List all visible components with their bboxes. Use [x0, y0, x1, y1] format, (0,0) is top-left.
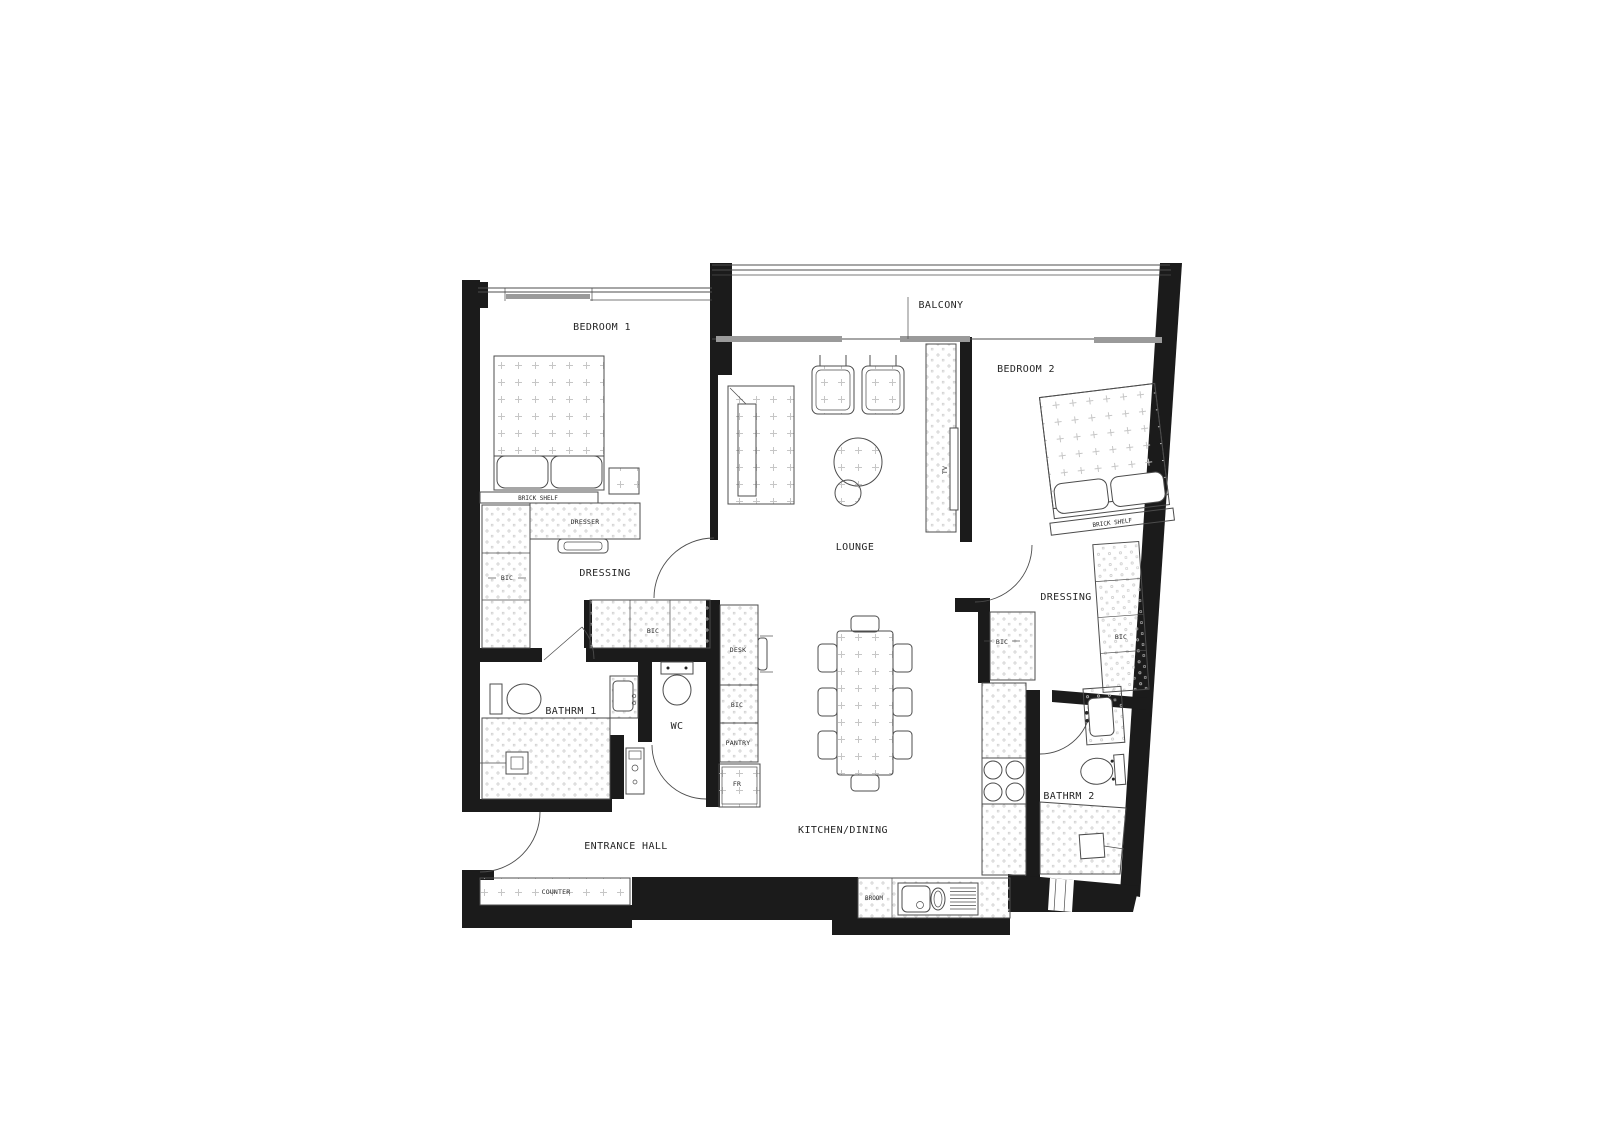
coffee-table	[834, 438, 882, 486]
balcony-slider-sill	[1094, 337, 1162, 343]
wall-bathroom1-south	[462, 799, 612, 812]
floor-plan-page: BRICK SHELF BEDROOM 1 BALCONY BEDROOM 2 …	[0, 0, 1600, 1142]
room-label-kitchen-dining: KITCHEN/DINING	[798, 825, 888, 836]
armchair-seat	[862, 366, 904, 414]
stove	[982, 758, 1026, 804]
basin-2	[1088, 697, 1115, 737]
dining-chair	[818, 688, 837, 716]
bathroom2-door-arc	[1040, 703, 1091, 754]
room-label-wc: WC	[671, 721, 684, 732]
wall-south-middle	[632, 877, 832, 920]
entrance-door-arc	[480, 812, 540, 872]
wall-wc-west-upper	[638, 650, 652, 742]
dining-set	[818, 616, 912, 791]
balcony-slider-sill	[716, 336, 842, 342]
label-bic-dressing2: BIC	[1115, 633, 1127, 641]
toilet-2-cistern	[661, 662, 693, 674]
shower-drain-2	[1079, 833, 1105, 859]
dining-chair	[893, 731, 912, 759]
label-tv: TV	[941, 466, 949, 474]
cistern-dot	[685, 667, 688, 670]
armchair-seat	[812, 366, 854, 414]
basin-1	[613, 681, 633, 711]
label-bic-left: BIC	[501, 574, 513, 582]
room-label-bathrm-2: BATHRM 2	[1043, 791, 1094, 802]
dining-chair	[818, 644, 837, 672]
wall-bathroom2-west	[1026, 690, 1040, 878]
cistern-dot	[667, 667, 670, 670]
wall-wc-west-lower	[610, 735, 624, 799]
label-brick-shelf-1: BRICK SHELF	[518, 495, 558, 502]
dining-chair	[818, 731, 837, 759]
room-label-lounge: LOUNGE	[836, 542, 875, 553]
dressing2-cupboards	[1093, 542, 1149, 693]
label-bic-kitchen: BIC	[996, 638, 1008, 646]
wc-door-arc	[652, 745, 706, 799]
bic-cupboard-kitchen	[990, 612, 1035, 680]
room-label-balcony: BALCONY	[919, 300, 964, 311]
label-broom: BROOM	[865, 895, 883, 902]
wall-bathroom2-south	[1008, 874, 1139, 912]
ottoman	[835, 480, 861, 506]
dressing1-door-arc	[654, 538, 714, 598]
toilet-2-bowl	[663, 675, 691, 705]
label-bic-column: BIC	[731, 701, 743, 709]
dresser-stool	[558, 539, 608, 553]
shower-drain-1	[506, 752, 528, 774]
bedroom2-door-arc	[975, 545, 1032, 602]
wall-south-counter	[462, 905, 632, 928]
sink-basin	[902, 886, 930, 912]
dining-chair	[851, 775, 879, 791]
desk-unit	[720, 605, 758, 685]
toilet-3-bowl	[1080, 757, 1114, 785]
bic-cupboard-mid	[590, 600, 710, 648]
armchair-2	[862, 355, 904, 414]
wall-bedroom1-right-top	[710, 263, 732, 375]
armchair-1	[812, 355, 854, 414]
desk-chair	[758, 638, 767, 670]
label-desk: DESK	[730, 646, 746, 654]
bathroom2-south-vent	[1048, 878, 1074, 912]
shower2	[1040, 802, 1126, 874]
room-label-bathrm-1: BATHRM 1	[545, 706, 596, 717]
room-label-entrance-hall: ENTRANCE HALL	[584, 841, 667, 852]
bed-2-pillow	[1110, 471, 1166, 507]
toilet-1-bowl	[507, 684, 541, 714]
bed-1-pillow	[551, 456, 602, 488]
bed-2-pillow	[1053, 478, 1109, 514]
label-pantry: PANTRY	[726, 739, 751, 747]
wall-lounge-bedroom2	[960, 337, 972, 542]
floor-plan-svg: BRICK SHELF BEDROOM 1 BALCONY BEDROOM 2 …	[0, 0, 1600, 1142]
tv-screen	[950, 428, 958, 510]
bed-1-pillow	[497, 456, 548, 488]
wall-left-upper	[462, 280, 480, 812]
dining-chair	[893, 688, 912, 716]
dining-table	[837, 631, 893, 775]
label-dresser: DRESSER	[571, 518, 600, 526]
wall-left-corner	[462, 282, 488, 308]
label-bic-mid: BIC	[647, 627, 659, 635]
balcony-slider-sill	[900, 336, 970, 342]
wall-kitchen-north-v	[978, 598, 990, 683]
toilet-3-cistern	[1114, 754, 1126, 785]
shower-floor-1	[482, 718, 610, 799]
central-column-units	[719, 605, 773, 807]
wall-dressing1-south-left	[462, 648, 542, 662]
cistern-dot	[1111, 760, 1114, 763]
lounge-furniture	[728, 344, 958, 532]
wall-bedroom1-right	[710, 375, 718, 540]
room-label-dressing-1: DRESSING	[579, 568, 630, 579]
bed-1	[494, 356, 604, 456]
label-fridge: FR	[733, 780, 741, 788]
toilet-1-cistern	[490, 684, 502, 714]
sink-drainer	[950, 888, 976, 909]
room-label-dressing-2: DRESSING	[1040, 592, 1091, 603]
dining-chair	[851, 616, 879, 632]
bathroom1-door-leaf	[544, 627, 582, 660]
room-label-bedroom-2: BEDROOM 2	[997, 364, 1055, 375]
bedroom1-window-sill	[506, 294, 590, 299]
wall-south-sink	[845, 918, 1010, 935]
label-counter: COUNTER	[542, 888, 571, 896]
bic-cupboard-dressing2	[1093, 542, 1149, 693]
dining-chair	[893, 644, 912, 672]
bedside-table	[609, 468, 639, 494]
cistern-dot	[1112, 778, 1115, 781]
room-label-bedroom-1: BEDROOM 1	[573, 322, 631, 333]
